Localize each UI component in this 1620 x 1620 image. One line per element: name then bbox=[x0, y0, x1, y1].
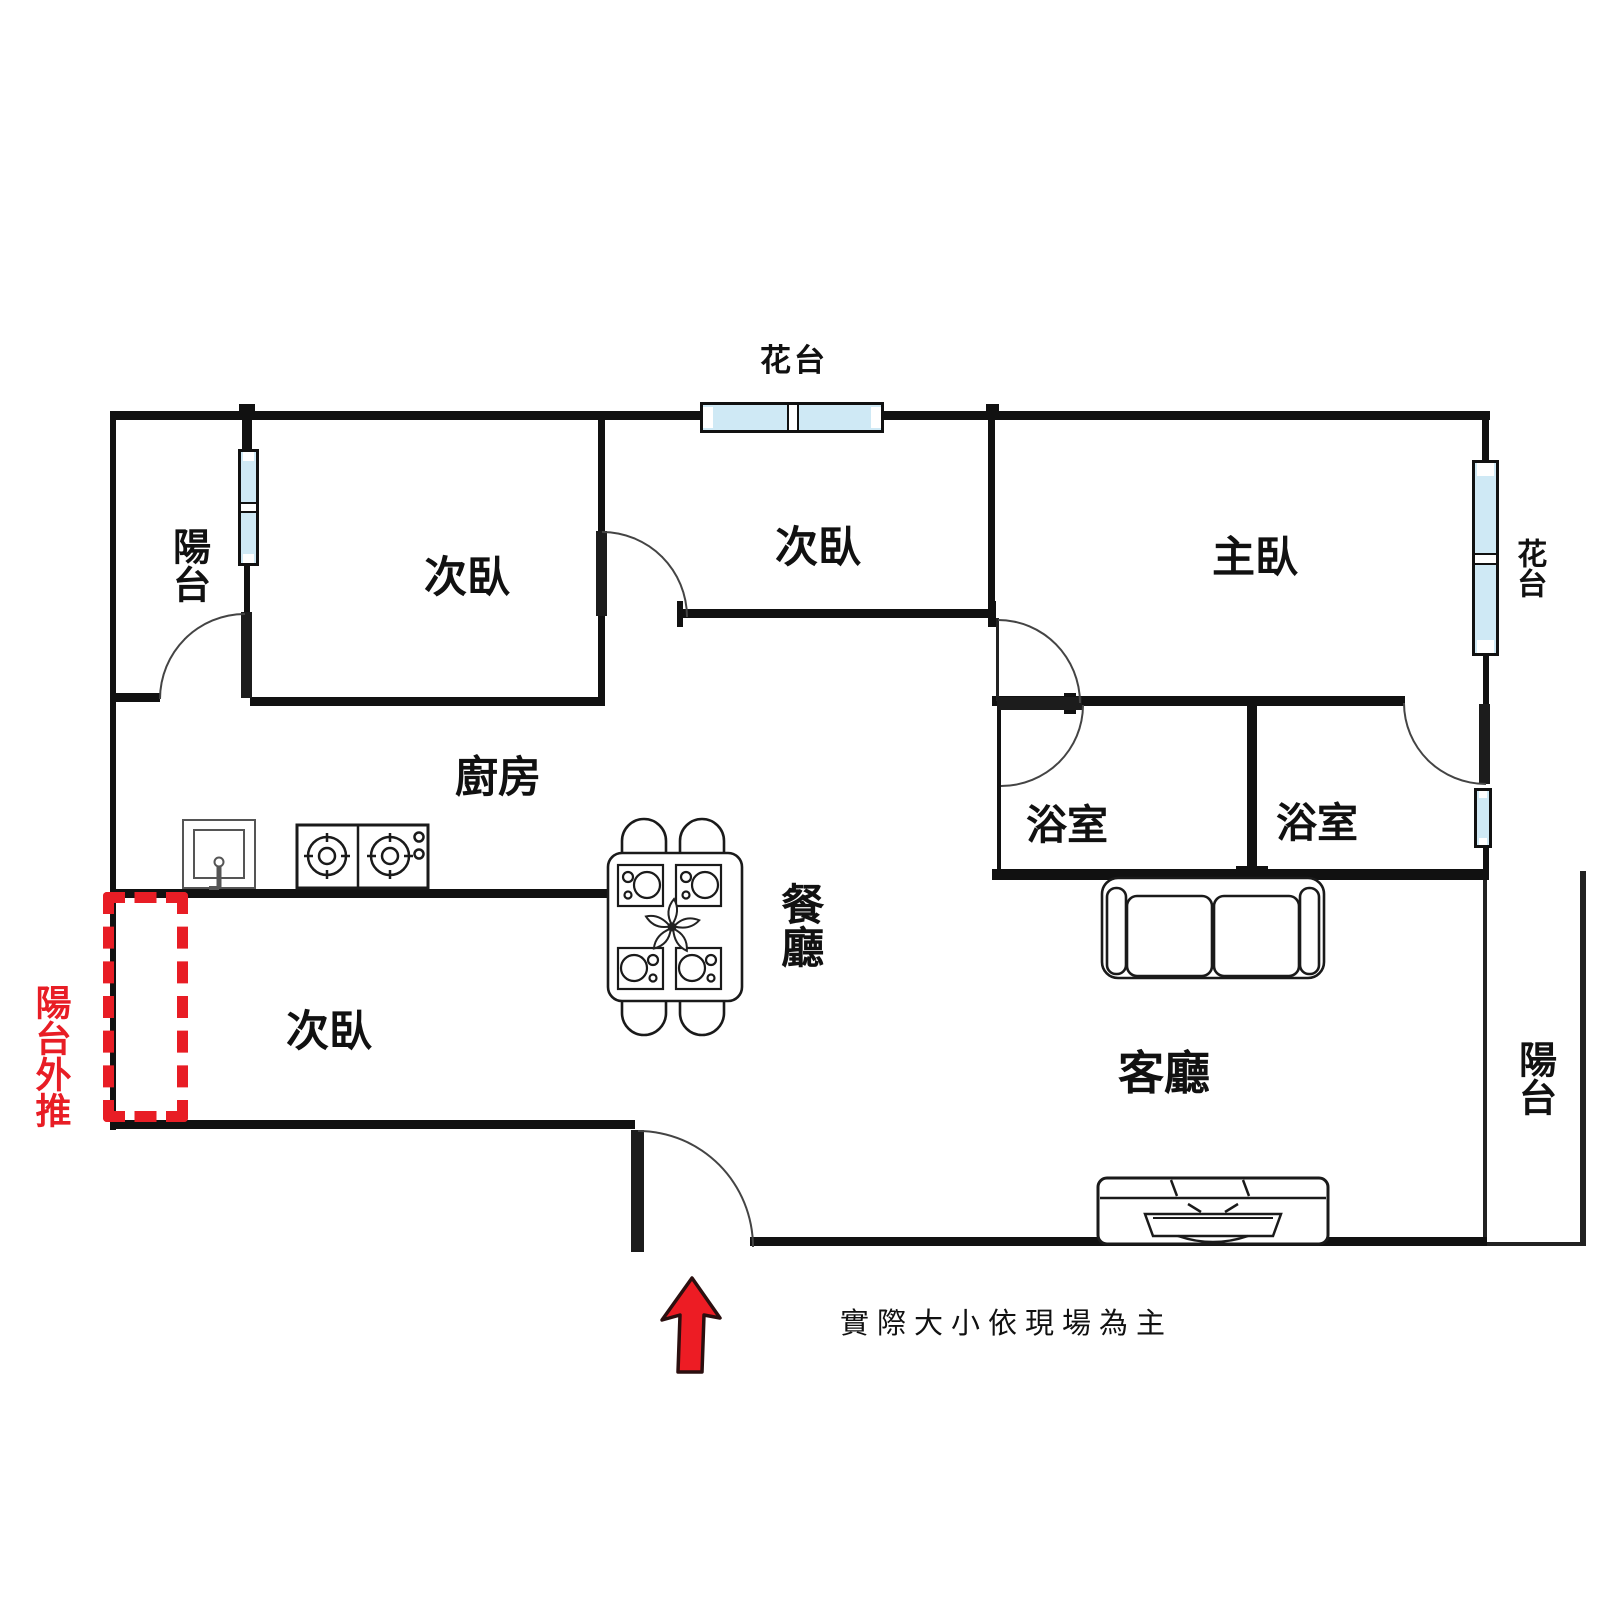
room-label-living: 客廳 bbox=[1118, 1050, 1210, 1098]
wall-right-top bbox=[1482, 411, 1489, 464]
room-label-dining: 餐廳 bbox=[776, 882, 821, 968]
tv-console bbox=[1093, 1170, 1333, 1250]
wall-bedroom2-bottom bbox=[680, 609, 996, 618]
room-label-balcony-top-left: 陽台 bbox=[167, 527, 207, 603]
window-cap bbox=[1477, 640, 1494, 653]
balcony-extension-outline bbox=[103, 892, 188, 1122]
wall-bedroom1-right-lower bbox=[598, 612, 605, 705]
wall-right-mid bbox=[1483, 652, 1489, 708]
door-arc-balcony-tl bbox=[159, 613, 245, 699]
room-label-bedroom-top-left: 次臥 bbox=[424, 556, 510, 601]
window-cap bbox=[1477, 463, 1494, 476]
feature-label-flower-bed-top: 花台 bbox=[760, 345, 828, 377]
window-cap bbox=[871, 407, 881, 428]
window-flower-bed-right bbox=[1472, 460, 1499, 656]
room-label-balcony-right: 陽台 bbox=[1513, 1040, 1553, 1116]
entrance-arrow bbox=[652, 1274, 726, 1376]
room-label-bathroom-left: 浴室 bbox=[1026, 804, 1108, 847]
sofa bbox=[1098, 870, 1328, 982]
wall-bedroom1-bottom bbox=[250, 697, 605, 706]
window-divider bbox=[787, 405, 799, 430]
feature-label-balcony-extension: 陽台外推 bbox=[32, 984, 69, 1128]
window-cap bbox=[703, 407, 713, 428]
door-arc-bathroom-left bbox=[1001, 705, 1084, 787]
room-label-kitchen: 廚房 bbox=[455, 756, 541, 801]
door-arc-bathroom-right bbox=[1403, 703, 1486, 785]
window-cap bbox=[1479, 838, 1487, 845]
room-label-bedroom-bottom-left: 次臥 bbox=[286, 1010, 372, 1055]
door-arc-bedroom2 bbox=[602, 531, 688, 617]
wall-balcony-right-outer bbox=[1580, 871, 1586, 1246]
door-arc-entrance bbox=[638, 1130, 754, 1247]
kitchen-sink bbox=[179, 816, 259, 894]
room-label-bathroom-right: 浴室 bbox=[1276, 802, 1358, 845]
window-divider bbox=[241, 502, 256, 513]
wall-balcony-tl-upper bbox=[242, 411, 252, 453]
window-flower-bed-top bbox=[700, 402, 884, 433]
window-bathroom-right bbox=[1474, 788, 1492, 848]
disclaimer-text: 實際大小依現場為主 bbox=[840, 1309, 1173, 1339]
room-label-bedroom-middle: 次臥 bbox=[775, 526, 861, 571]
wall-bathroom-divider bbox=[1247, 700, 1257, 877]
window-cap bbox=[1479, 791, 1487, 798]
window-cap bbox=[243, 554, 254, 563]
wall-balcony-right-inner bbox=[1483, 880, 1487, 1246]
wall-balcony-right-bottom bbox=[1486, 1242, 1584, 1246]
wall-bedroom3-bottom bbox=[110, 1120, 635, 1129]
wall-right-low bbox=[1483, 844, 1489, 880]
room-label-master-bedroom: 主臥 bbox=[1212, 536, 1298, 581]
floor-plan: 陽台 次臥 次臥 主臥 廚房 次臥 餐廳 客廳 浴室 浴室 陽台 花台 花台 陽… bbox=[0, 0, 1620, 1620]
door-arc-master bbox=[998, 619, 1081, 703]
dining-table-set bbox=[600, 808, 750, 1048]
wall-master-left bbox=[988, 411, 995, 622]
wall-balcony-tl-mid bbox=[244, 562, 250, 615]
window-balcony-tl bbox=[238, 449, 259, 566]
wall-stub-top-master bbox=[986, 404, 999, 412]
kitchen-stove bbox=[294, 822, 434, 894]
window-cap bbox=[243, 452, 254, 461]
wall-stub-top-balcony bbox=[239, 404, 255, 412]
window-divider bbox=[1475, 553, 1496, 565]
wall-bedroom1-right-upper bbox=[598, 411, 605, 534]
feature-label-flower-bed-right: 花台 bbox=[1513, 538, 1544, 598]
wall-balcony-tl-stub bbox=[110, 693, 160, 702]
